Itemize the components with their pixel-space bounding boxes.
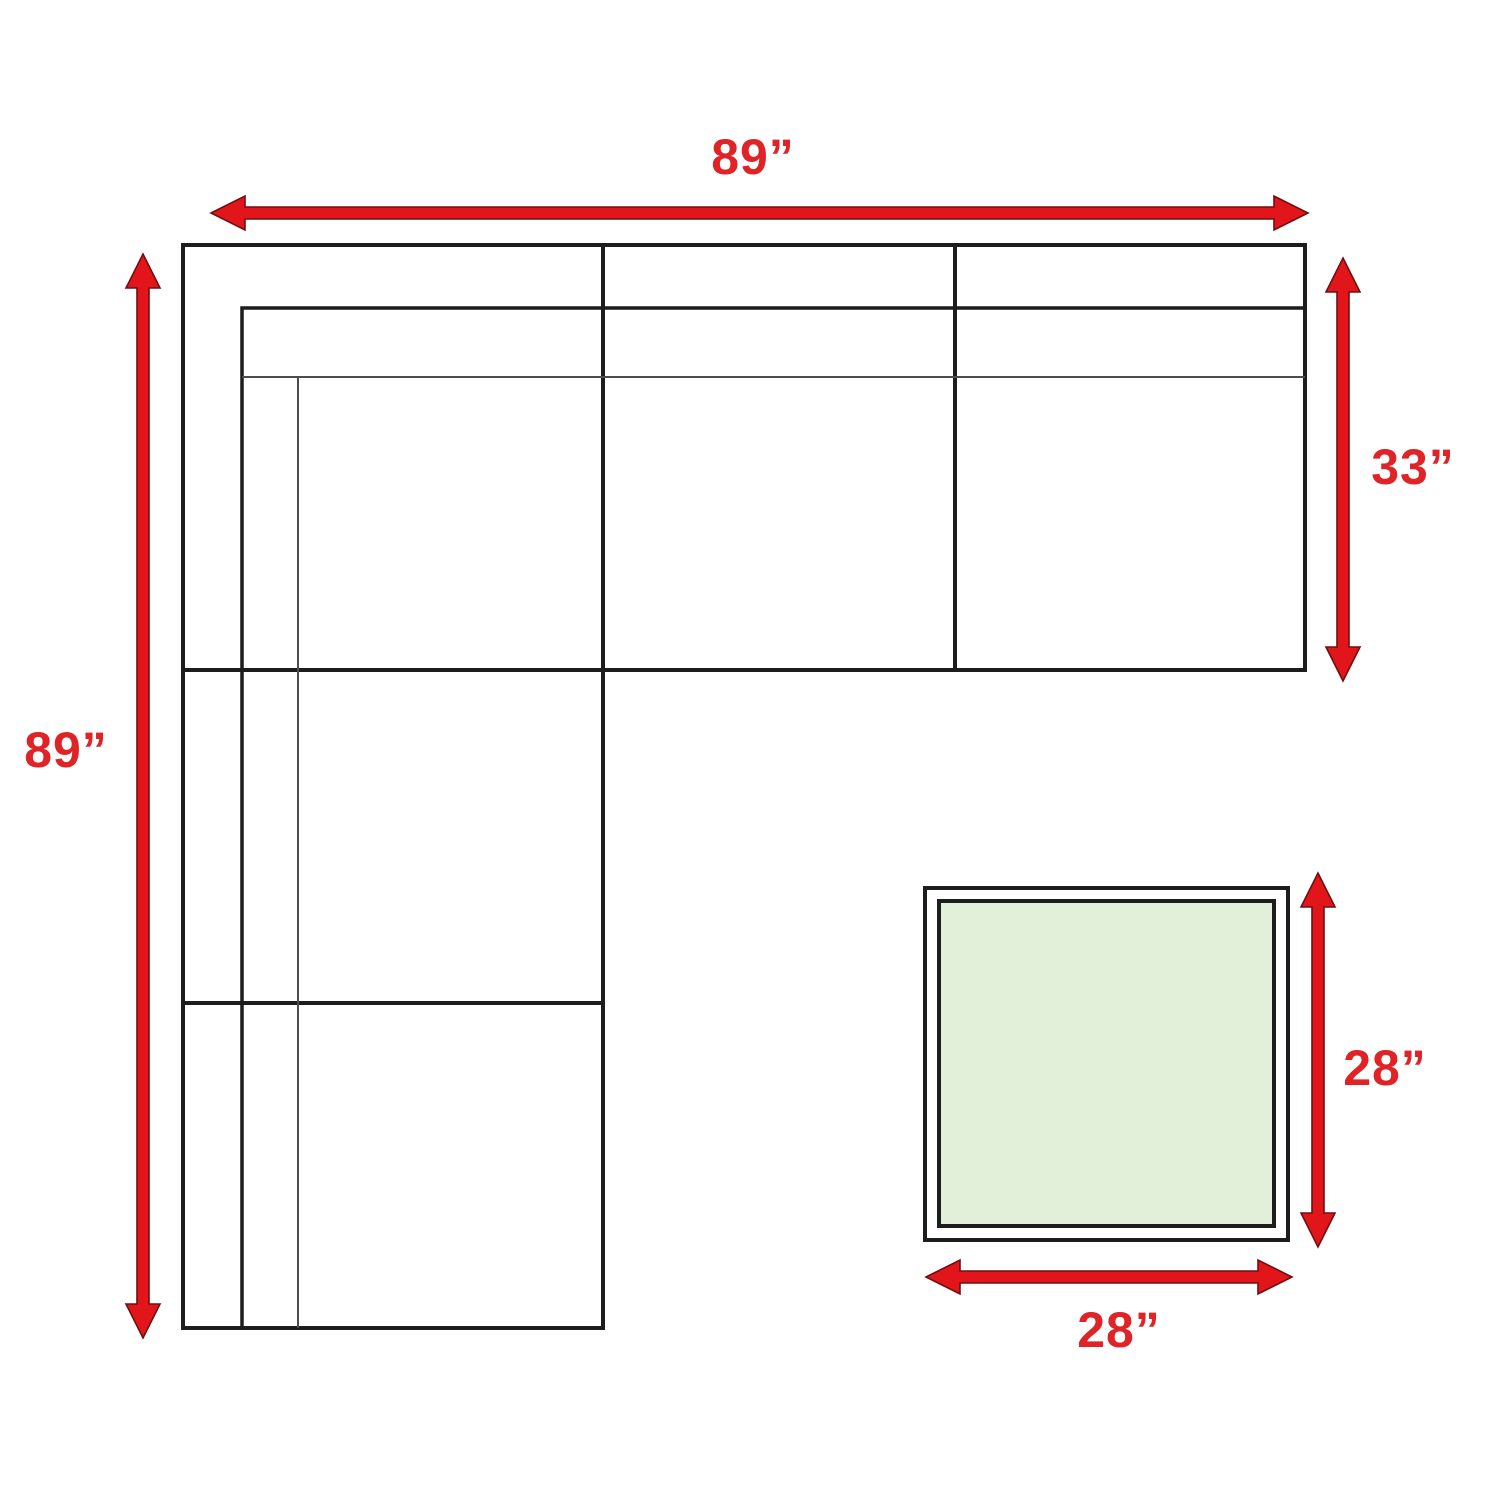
sofa-right-depth-label: 33” [1351, 438, 1475, 496]
dimension-diagram: 89” 89” 33” 28” 28” [0, 0, 1500, 1500]
ottoman-top-surface [939, 901, 1274, 1226]
ottoman [925, 888, 1288, 1240]
ottoman-width-label: 28” [1057, 1301, 1181, 1359]
sofa-height-label: 89” [4, 721, 128, 779]
diagram-artwork [0, 0, 1500, 1500]
sofa-height-arrow [126, 254, 160, 1338]
ottoman-width-arrow [926, 1260, 1292, 1294]
ottoman-depth-label: 28” [1323, 1039, 1447, 1097]
sofa-width-arrow [211, 196, 1308, 230]
sofa-width-label: 89” [691, 128, 815, 186]
